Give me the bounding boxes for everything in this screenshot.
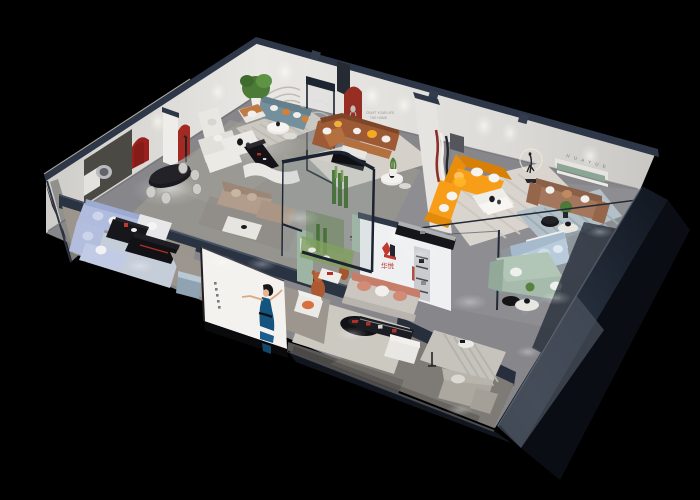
svg-text:华悦: 华悦 xyxy=(381,261,395,270)
svg-text:CRAFT YOUR LIFE: CRAFT YOUR LIFE xyxy=(366,111,394,115)
svg-text:THE HOME: THE HOME xyxy=(370,116,387,120)
